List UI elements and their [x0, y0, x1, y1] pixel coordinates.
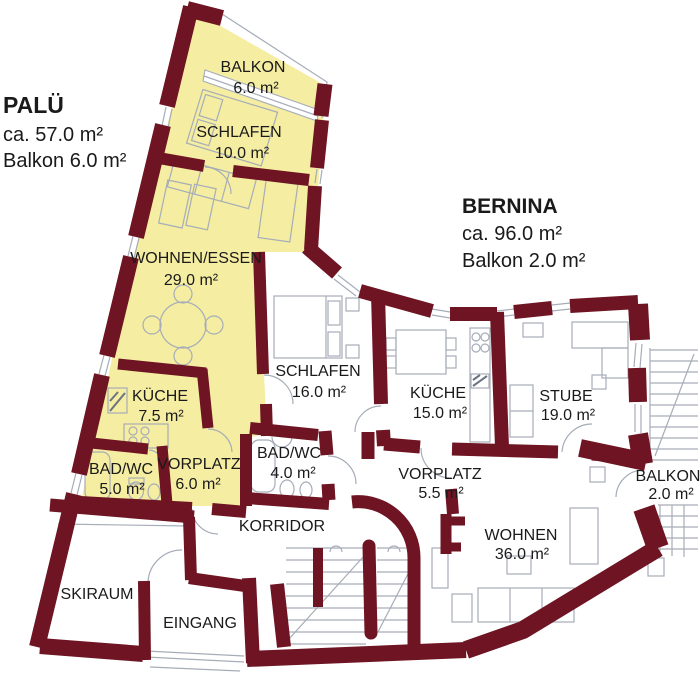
room-label-eingang: EINGANG	[163, 615, 237, 632]
room-area-kueche-palue: 7.5 m²	[138, 408, 184, 425]
palue-title: PALÜ	[3, 92, 64, 118]
room-label-balkon-palue: BALKON	[221, 59, 286, 76]
room-area-balkon-palue: 6.0 m²	[233, 80, 279, 97]
room-area-schlafen-palue: 10.0 m²	[215, 145, 270, 162]
palue-balcony: Balkon 6.0 m²	[3, 150, 127, 172]
room-label-kueche-palue: KÜCHE	[132, 387, 188, 405]
room-label-korridor: KORRIDOR	[239, 518, 325, 535]
room-area-kueche-bernina: 15.0 m²	[413, 405, 468, 422]
room-area-vorplatz-bernina: 5.5 m²	[418, 485, 464, 502]
floor-plan-svg: PALÜ ca. 57.0 m² Balkon 6.0 m² BERNINA c…	[0, 0, 700, 677]
room-label-schlafen-palue: SCHLAFEN	[196, 124, 281, 141]
room-area-vorplatz-palue: 6.0 m²	[175, 476, 221, 493]
room-area-bad-palue: 5.0 m²	[99, 481, 145, 498]
room-area-wohnen-essen: 29.0 m²	[164, 272, 219, 289]
room-label-wohnen-essen: WOHNEN/ESSEN	[130, 250, 262, 267]
room-area-schlafen-bernina: 16.0 m²	[292, 384, 347, 401]
bernina-balcony: Balkon 2.0 m²	[462, 250, 586, 272]
room-label-skiraum: SKIRAUM	[61, 586, 134, 603]
room-label-balkon-bernina: BALKON	[636, 468, 700, 485]
bernina-size: ca. 96.0 m²	[462, 223, 562, 245]
room-label-vorplatz-palue: VORPLATZ	[157, 456, 241, 473]
bernina-title: BERNINA	[462, 195, 558, 218]
bed-bernina	[274, 296, 342, 358]
room-label-schlafen-bernina: SCHLAFEN	[275, 363, 360, 380]
room-label-bad-bernina: BAD/WC	[257, 445, 321, 462]
floor-plan: PALÜ ca. 57.0 m² Balkon 6.0 m² BERNINA c…	[0, 0, 700, 677]
room-area-bad-bernina: 4.0 m²	[270, 465, 316, 482]
room-label-vorplatz-bernina: VORPLATZ	[398, 466, 482, 483]
interior-staircase	[286, 546, 413, 644]
room-label-bad-palue: BAD/WC	[89, 461, 153, 478]
room-area-wohnen-bernina: 36.0 m²	[495, 546, 550, 563]
room-area-balkon-bernina: 2.0 m²	[648, 486, 694, 503]
room-area-stube: 19.0 m²	[541, 407, 596, 424]
palue-size: ca. 57.0 m²	[3, 124, 103, 146]
room-label-kueche-bernina: KÜCHE	[410, 384, 466, 402]
room-label-wohnen-bernina: WOHNEN	[485, 527, 558, 544]
room-label-stube: STUBE	[539, 388, 592, 405]
